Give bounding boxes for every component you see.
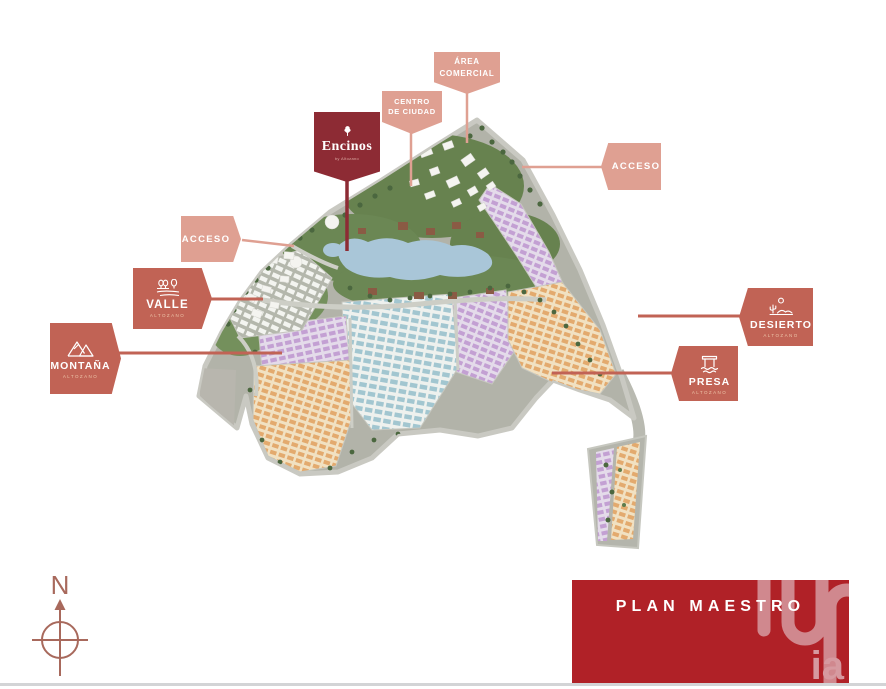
tag-presa-brand: ALTOZANO	[692, 390, 727, 395]
tag-valle-name: VALLE	[146, 299, 189, 311]
valley-trees-icon	[155, 279, 181, 297]
tag-area-comercial-line2: COMERCIAL	[440, 68, 495, 79]
tag-encinos-subtitle: by Altozano	[335, 156, 359, 161]
master-plan-page: ÁREA COMERCIAL CENTRO DE CIUDAD Encinos …	[0, 0, 886, 689]
desert-icon	[767, 297, 795, 317]
tag-acceso-west-label: ACCESO	[182, 234, 231, 245]
north-label: N	[22, 572, 98, 598]
tag-centro-line2: DE CIUDAD	[388, 107, 436, 118]
brand-watermark-logo	[572, 580, 849, 683]
tag-desierto-brand: ALTOZANO	[763, 333, 798, 338]
tag-valle-brand: ALTOZANO	[150, 313, 185, 318]
footer-banner: ia PLAN MAESTRO	[572, 580, 849, 683]
parking-wedge	[199, 368, 236, 428]
brand-watermark-text: ia	[811, 644, 844, 683]
district-orange-south	[253, 360, 352, 472]
bottom-divider	[0, 683, 886, 686]
tag-montana-brand: ALTOZANO	[63, 374, 98, 379]
compass-rose: N	[22, 572, 98, 684]
tag-encinos: Encinos by Altozano	[314, 112, 380, 182]
tag-centro-line1: CENTRO	[394, 97, 430, 108]
tag-valle: VALLE ALTOZANO	[133, 268, 212, 329]
mountains-icon	[66, 338, 95, 358]
tag-presa-name: PRESA	[689, 376, 730, 388]
tag-acceso-east: ACCESO	[601, 143, 661, 190]
plan-maestro-title: PLAN MAESTRO	[572, 598, 849, 616]
tag-desierto-name: DESIERTO	[750, 319, 812, 331]
dam-icon	[698, 353, 721, 374]
tag-encinos-name: Encinos	[322, 139, 372, 155]
tag-montana-name: MONTAÑA	[50, 360, 110, 372]
compass-cross-icon	[22, 598, 98, 680]
tag-montana: MONTAÑA ALTOZANO	[50, 323, 121, 394]
oak-tree-icon	[341, 124, 354, 138]
tag-acceso-east-label: ACCESO	[612, 161, 661, 172]
tag-desierto: DESIERTO ALTOZANO	[739, 288, 813, 346]
tag-presa: PRESA ALTOZANO	[671, 346, 738, 401]
tag-acceso-west: ACCESO	[181, 216, 241, 262]
tag-area-comercial-line1: ÁREA	[454, 56, 480, 67]
